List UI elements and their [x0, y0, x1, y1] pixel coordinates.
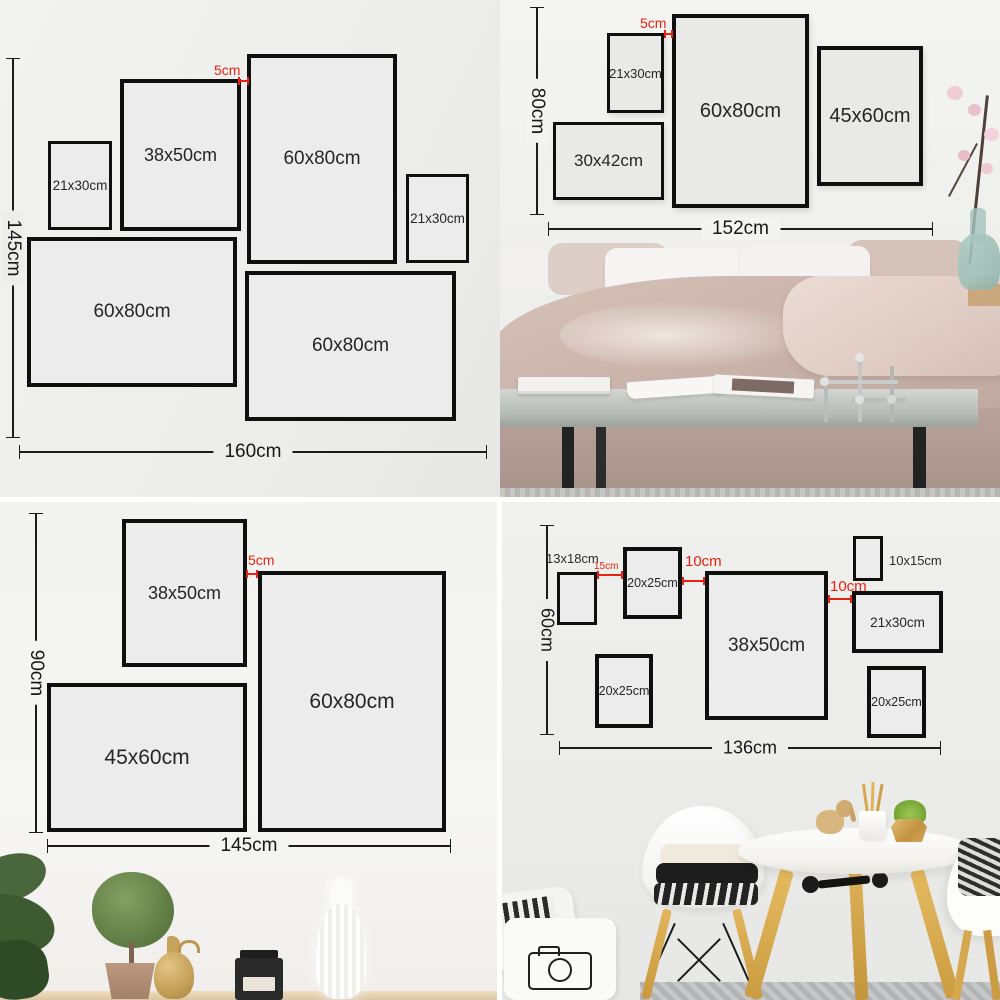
candle-ball-joint — [855, 353, 864, 362]
quadrant-separator-vertical — [497, 497, 502, 1000]
folded-blanket-black — [656, 863, 758, 885]
gap-annotation-line — [238, 80, 249, 82]
width-dimension-label: 136cm — [712, 738, 788, 759]
gap-annotation-line — [682, 580, 705, 582]
gap-annotation-label: 5cm — [640, 15, 666, 31]
gap-annotation-line — [597, 574, 623, 576]
frame-size-label: 20x25cm — [599, 684, 650, 698]
pencil-stick — [875, 784, 883, 814]
quadrant-top-left-size-diagram: 145cm 160cm 21x30cm 38x50cm 60x80cm 21x3… — [0, 0, 500, 500]
blossom — [981, 163, 993, 174]
dimension-tick — [19, 445, 20, 459]
dimension-tick — [29, 832, 43, 833]
gap-line-tick — [256, 570, 258, 578]
gap-annotation-label: 10cm — [830, 578, 867, 595]
frame-size-label: 21x30cm — [410, 211, 465, 226]
candle-ball-joint — [820, 377, 829, 386]
blossom — [968, 104, 981, 116]
wall-width-dimension: 152cm — [548, 218, 933, 240]
frame-size-label: 60x80cm — [93, 301, 170, 323]
width-dimension-label: 145cm — [209, 835, 288, 857]
tree-trunk — [129, 942, 134, 966]
frame-size-label-outside: 13x18cm — [546, 551, 599, 566]
frame-size-label: 21x30cm — [609, 66, 662, 81]
frame-size-label: 38x50cm — [144, 145, 217, 166]
gap-line-tick — [246, 570, 248, 578]
table-leg — [849, 870, 869, 1000]
frame-size-label: 45x60cm — [829, 105, 910, 128]
dimension-tick — [6, 58, 20, 59]
gap-line-tick — [247, 77, 249, 85]
tree-foliage — [92, 872, 174, 948]
folded-blanket-pattern — [654, 883, 758, 905]
spray-bottle-body — [154, 952, 194, 999]
height-dimension-label: 60cm — [537, 599, 558, 661]
frame-60x80-landscape: 60x80cm — [245, 271, 456, 421]
frame-size-label: 60x80cm — [312, 335, 389, 357]
table-top — [738, 828, 974, 874]
table-leg-knob — [802, 876, 819, 893]
camera-sketch-top — [538, 946, 560, 956]
dimension-tick — [540, 734, 554, 735]
wall-width-dimension: 160cm — [19, 441, 487, 463]
camera-sketch-lens — [548, 958, 572, 982]
frame-38x50: 38x50cm — [122, 519, 247, 667]
dimension-tick — [932, 222, 933, 236]
gap-annotation-line — [246, 573, 258, 575]
frame-size-label: 20x25cm — [871, 695, 922, 709]
gap-line-tick — [682, 577, 684, 585]
glass-vase-body — [958, 234, 1000, 290]
dimension-tick — [559, 741, 560, 755]
frame-20x25: 20x25cm — [595, 654, 653, 728]
frame-21x30-landscape: 21x30cm — [852, 591, 943, 653]
dimension-tick — [530, 214, 544, 215]
blossom — [958, 150, 970, 161]
dimension-tick — [940, 741, 941, 755]
height-dimension-label: 90cm — [25, 641, 47, 705]
candle-post — [858, 356, 862, 422]
candle-ball-joint — [887, 395, 896, 404]
dimension-tick — [486, 445, 487, 459]
gap-annotation-label: 5cm — [214, 62, 240, 78]
table-leg-knob — [872, 872, 888, 888]
frame-20x25: 20x25cm — [867, 666, 926, 738]
bed-duvet-sheen — [560, 300, 820, 370]
candle-post — [890, 366, 894, 422]
frame-38x50: 38x50cm — [120, 79, 241, 231]
dimension-tick — [450, 839, 451, 853]
gap-line-tick — [850, 595, 852, 603]
frame-size-label-outside: 10x15cm — [889, 553, 942, 568]
dimension-tick — [29, 513, 43, 514]
gap-annotation-line — [664, 33, 673, 35]
frame-21x30: 21x30cm — [48, 141, 112, 230]
geometric-gold-pot — [891, 819, 927, 842]
frame-size-label: 20x25cm — [627, 576, 678, 590]
frame-60x80-portrait: 60x80cm — [258, 571, 446, 832]
wall-height-dimension: 80cm — [528, 7, 546, 215]
wall-width-dimension: 136cm — [559, 737, 941, 759]
width-dimension-label: 152cm — [701, 218, 780, 240]
frame-size-label: 60x80cm — [700, 100, 781, 123]
frame-size-label: 21x30cm — [870, 615, 925, 630]
dimension-tick — [548, 222, 549, 236]
wall-height-dimension: 90cm — [27, 513, 45, 833]
spray-bottle-handle — [178, 940, 200, 953]
gap-line-tick — [597, 571, 599, 579]
terracotta-pot — [103, 963, 157, 999]
quadrant-bottom-right-dining-photo: 60cm 136cm 13x18cm 20x25cm 38x50cm 10x15… — [500, 500, 1000, 1000]
frame-size-label: 38x50cm — [148, 583, 221, 604]
dimension-tick — [6, 437, 20, 438]
width-dimension-label: 160cm — [213, 441, 292, 463]
pencil-stick — [862, 784, 869, 814]
right-chair-pattern-blanket — [958, 838, 1000, 896]
frame-60x80-portrait: 60x80cm — [247, 54, 397, 264]
canister-label — [243, 977, 275, 991]
frame-60x80-landscape: 60x80cm — [27, 237, 237, 387]
dimension-tick — [530, 7, 544, 8]
dimension-tick — [47, 839, 48, 853]
height-dimension-label: 80cm — [526, 79, 548, 143]
frame-38x50: 38x50cm — [705, 571, 828, 720]
height-dimension-label: 145cm — [2, 210, 24, 285]
gap-annotation-line — [828, 598, 852, 600]
blossom — [984, 128, 999, 141]
frame-60x80-portrait: 60x80cm — [672, 14, 809, 208]
pencil-cup — [859, 811, 886, 839]
pleated-lamp-body — [316, 904, 366, 999]
frame-size-label: 60x80cm — [283, 148, 360, 170]
frame-45x60: 45x60cm — [47, 683, 247, 832]
gap-annotation-label: 5cm — [248, 552, 274, 568]
frame-10x15 — [853, 536, 883, 581]
frame-21x30: 21x30cm — [607, 33, 664, 113]
wall-width-dimension: 145cm — [47, 835, 451, 857]
frame-45x60: 45x60cm — [817, 46, 923, 186]
frame-size-label: 45x60cm — [104, 746, 189, 770]
wooden-elephant-trunk — [848, 808, 856, 823]
quadrant-top-right-bedroom-photo: 80cm 152cm 21x30cm 60x80cm 45x60cm 30x42… — [500, 0, 1000, 500]
gap-line-tick — [671, 30, 673, 38]
gap-line-tick — [828, 595, 830, 603]
gap-line-tick — [621, 571, 623, 579]
blossom — [947, 86, 963, 100]
frame-size-label: 30x42cm — [574, 151, 643, 171]
frame-13x18 — [557, 572, 597, 625]
candle-ball-joint — [855, 395, 864, 404]
book-stack — [518, 377, 610, 394]
candle-holder-group — [818, 350, 910, 422]
candle-bar — [820, 380, 898, 384]
frame-size-label: 38x50cm — [728, 635, 805, 657]
frame-size-label: 21x30cm — [53, 178, 108, 193]
gap-line-tick — [238, 77, 240, 85]
frame-size-label: 60x80cm — [309, 690, 394, 714]
gap-line-tick — [703, 577, 705, 585]
frame-21x30: 21x30cm — [406, 174, 469, 263]
quadrant-bottom-left-size-diagram: 90cm 145cm 38x50cm 60x80cm 45x60cm 5cm — [0, 500, 500, 1000]
dimension-tick — [540, 525, 554, 526]
gap-line-tick — [664, 30, 666, 38]
pencil-stick — [870, 782, 874, 814]
frame-20x25: 20x25cm — [623, 547, 682, 619]
wall-height-dimension: 145cm — [4, 58, 22, 438]
frame-30x42: 30x42cm — [553, 122, 664, 200]
gap-annotation-label: 10cm — [685, 553, 722, 570]
